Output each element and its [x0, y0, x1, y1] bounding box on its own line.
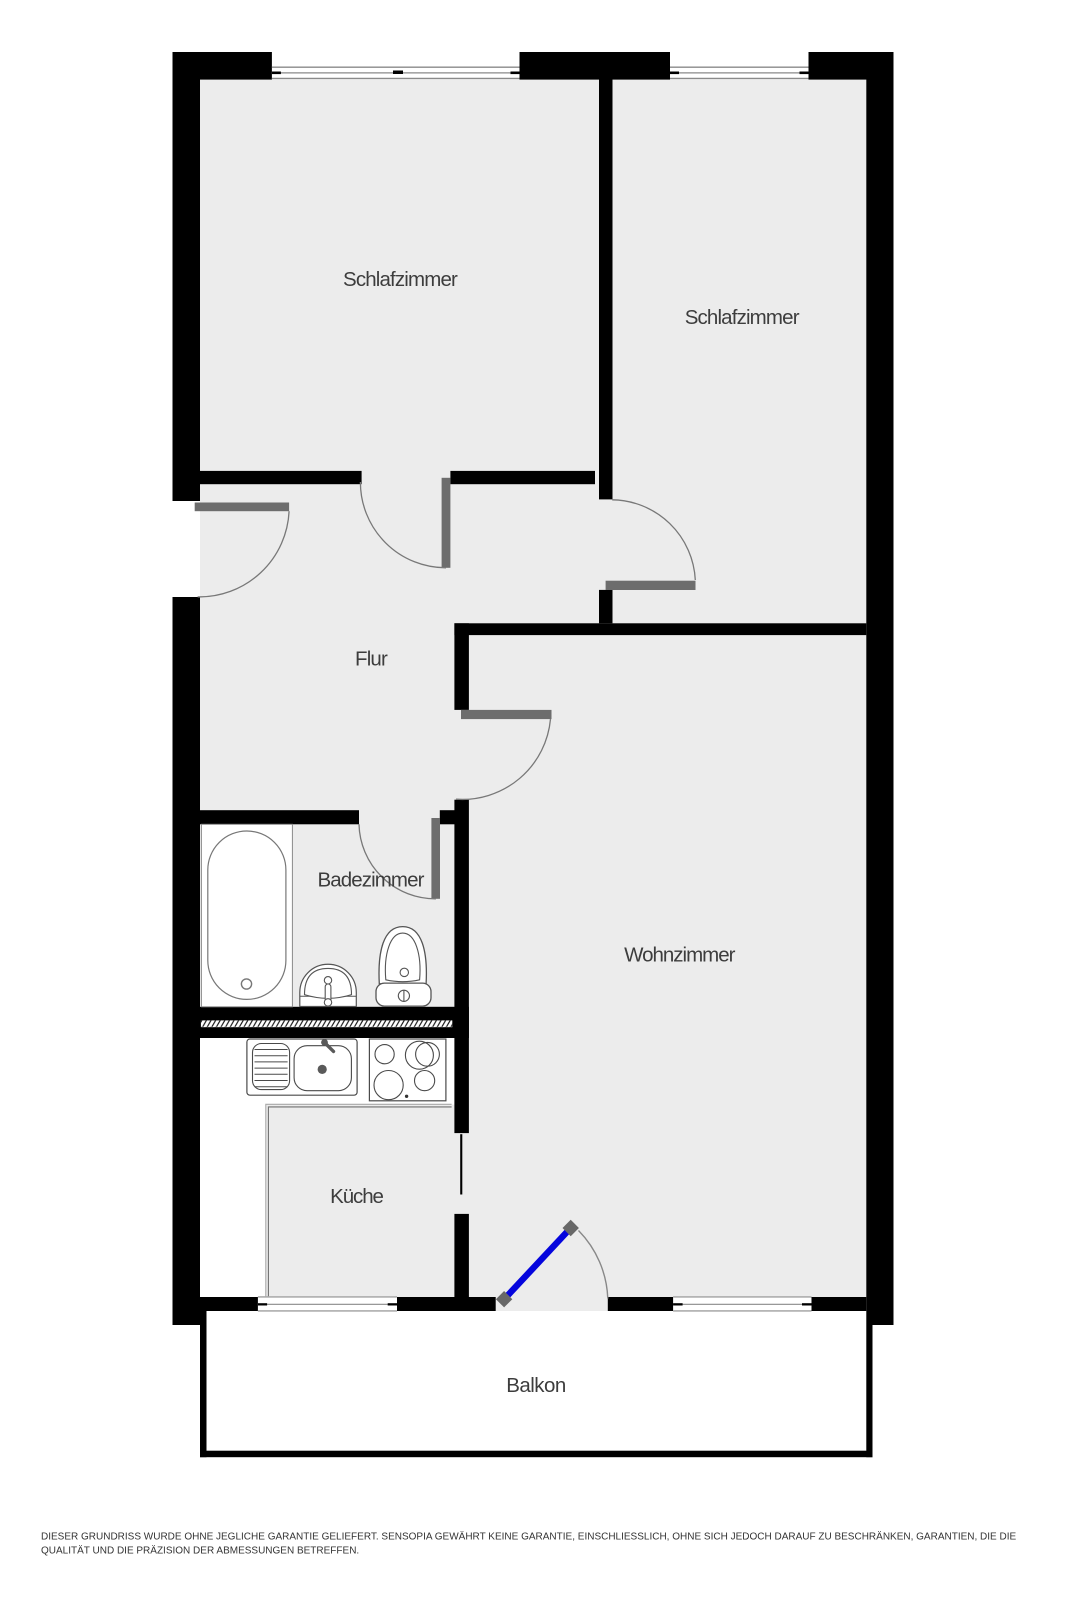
svg-text:Wohnzimmer: Wohnzimmer — [624, 943, 736, 966]
svg-text:QUALITÄT UND DIE PRÄZISION DER: QUALITÄT UND DIE PRÄZISION DER ABMESSUNG… — [41, 1545, 359, 1557]
svg-text:Flur: Flur — [355, 647, 388, 670]
svg-text:Badezimmer: Badezimmer — [317, 868, 424, 891]
svg-text:Balkon: Balkon — [506, 1374, 566, 1397]
svg-text:Schlafzimmer: Schlafzimmer — [343, 268, 458, 291]
svg-text:DIESER GRUNDRISS WURDE OHNE JE: DIESER GRUNDRISS WURDE OHNE JEGLICHE GAR… — [41, 1531, 1017, 1543]
svg-text:Schlafzimmer: Schlafzimmer — [685, 306, 800, 329]
svg-text:Küche: Küche — [330, 1185, 383, 1208]
